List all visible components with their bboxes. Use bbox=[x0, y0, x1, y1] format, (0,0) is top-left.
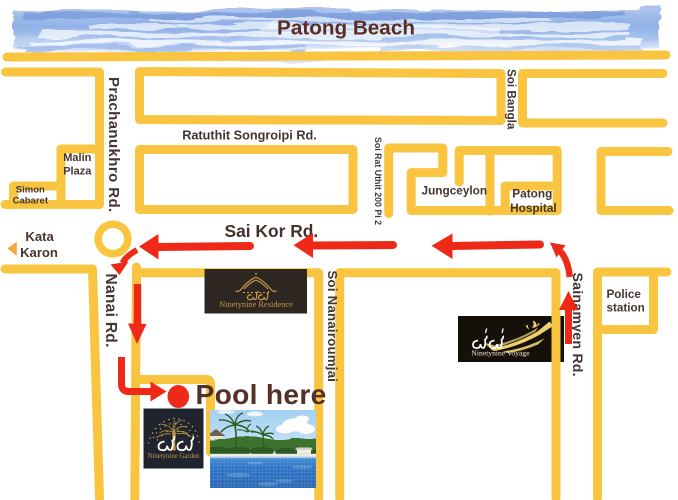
svg-text:Soi Rat Uthit 200 Pi 2: Soi Rat Uthit 200 Pi 2 bbox=[373, 137, 383, 225]
svg-text:Ninetynine Residence: Ninetynine Residence bbox=[219, 300, 293, 309]
svg-text:Jungceylon: Jungceylon bbox=[422, 184, 488, 198]
svg-text:Kata: Kata bbox=[25, 229, 54, 244]
svg-text:Sai Kor Rd.: Sai Kor Rd. bbox=[225, 221, 319, 241]
svg-text:Ninetynine Garden: Ninetynine Garden bbox=[148, 453, 201, 460]
svg-text:station: station bbox=[607, 302, 645, 315]
svg-text:Soi Nanairoumjai: Soi Nanairoumjai bbox=[325, 271, 340, 383]
svg-text:Prachanukhro Rd.: Prachanukhro Rd. bbox=[105, 77, 122, 213]
svg-text:Ninetynine Voyage: Ninetynine Voyage bbox=[471, 349, 530, 358]
svg-text:Karon: Karon bbox=[20, 245, 58, 260]
svg-text:Cabaret: Cabaret bbox=[13, 196, 49, 207]
svg-text:Simon: Simon bbox=[16, 185, 45, 196]
svg-text:Nanai Rd.: Nanai Rd. bbox=[102, 274, 119, 348]
svg-text:Police: Police bbox=[607, 288, 642, 301]
svg-text:Patong Beach: Patong Beach bbox=[277, 17, 415, 40]
svg-text:Hospital: Hospital bbox=[510, 201, 557, 215]
svg-text:Malin: Malin bbox=[63, 152, 91, 164]
svg-text:Plaza: Plaza bbox=[63, 165, 92, 177]
svg-text:Ratuthit Songroipi Rd.: Ratuthit Songroipi Rd. bbox=[182, 129, 317, 143]
svg-text:Pool here: Pool here bbox=[196, 378, 327, 410]
svg-text:Soi Bangla: Soi Bangla bbox=[505, 69, 518, 130]
svg-text:Patong: Patong bbox=[512, 187, 552, 201]
